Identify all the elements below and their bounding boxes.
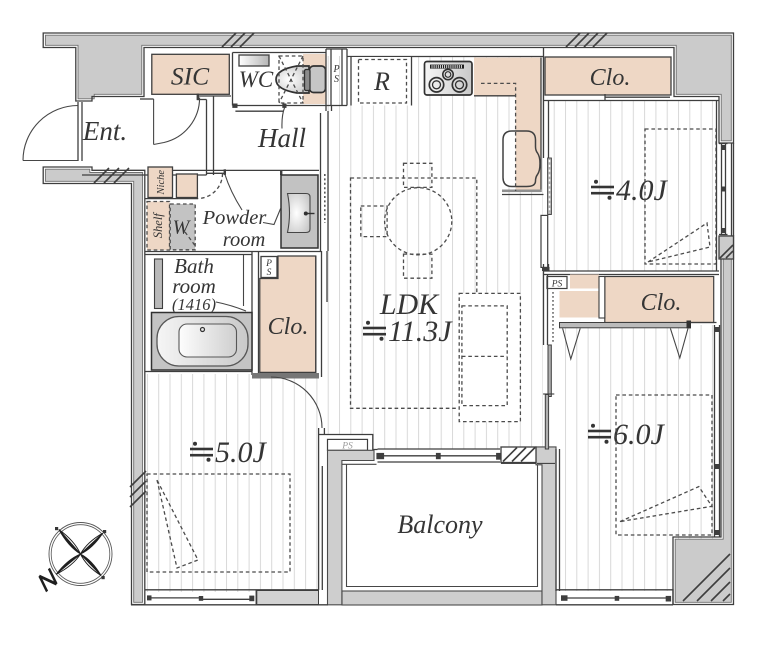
svg-text:11.3J: 11.3J [388,315,453,348]
svg-text:Niche: Niche [156,170,167,196]
svg-text:4.0J: 4.0J [616,174,669,207]
svg-text:Clo.: Clo. [268,314,309,340]
svg-text:WC: WC [239,67,274,92]
svg-text:5.0J: 5.0J [215,436,268,469]
svg-text:W: W [173,217,192,239]
svg-text:PS: PS [551,280,563,290]
svg-text:R: R [373,67,390,96]
svg-text:Ent.: Ent. [82,116,127,146]
svg-text:SIC: SIC [171,62,210,91]
svg-text:(1416): (1416) [172,295,216,314]
svg-text:Clo.: Clo. [641,290,682,316]
svg-text:Balcony: Balcony [397,510,483,539]
svg-text:S: S [267,268,272,278]
svg-text:Clo.: Clo. [590,65,631,91]
svg-text:Powder: Powder [202,207,268,229]
svg-text:Shelf: Shelf [151,212,165,239]
svg-text:room: room [223,229,266,251]
svg-text:6.0J: 6.0J [613,418,666,451]
svg-text:S: S [334,74,339,85]
